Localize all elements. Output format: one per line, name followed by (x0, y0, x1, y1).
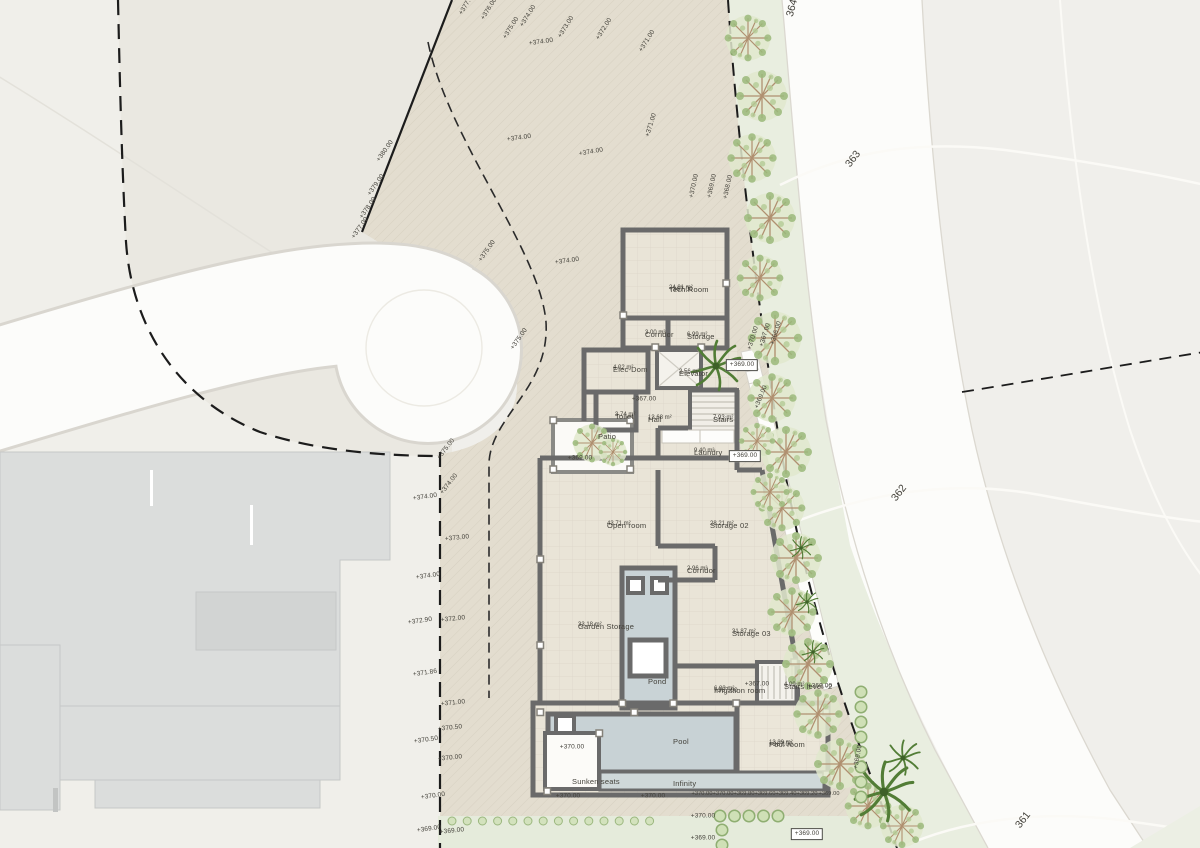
elevation-label: +370.00 (688, 173, 700, 198)
contour-label: 363 (843, 148, 863, 169)
elevation-label: +375.00 (502, 16, 521, 40)
elevation-label: +379.00 (366, 173, 386, 197)
elevation-label: +374.00 (412, 492, 437, 502)
elevation-label: +369.00 (753, 384, 769, 409)
elevation-label: +374.00 (554, 256, 579, 266)
elevation-label: +371.00 (638, 29, 657, 53)
elevation-label: +373.00 (557, 15, 576, 39)
elevation-label: +369.00 (440, 826, 465, 836)
elevation-label: +369.00 (726, 359, 758, 371)
elevation-label: +371.00 (441, 698, 466, 708)
elevation-label: +370.00 (712, 791, 733, 797)
elevation-label: +369.40 (775, 791, 796, 797)
elevation-label: +374.00 (578, 146, 603, 157)
elevation-label: +377.00 (350, 216, 370, 240)
elevation-label: +372.90 (407, 616, 432, 626)
elevation-label: +370.00 (420, 791, 445, 801)
elevation-label: +374.00 (439, 472, 460, 496)
elevation-label: +369.60 (754, 791, 775, 797)
annotation-layer: Tech.Room24.81 m²+367.00Corridor3.00 m²S… (0, 0, 1200, 848)
elevation-label: +370.00 (746, 325, 760, 350)
elevation-label: +370.00 (438, 753, 463, 763)
elevation-label: +369.00 (808, 683, 832, 690)
elevation-label: +367.00 (632, 396, 656, 403)
elevation-label: +371.00 (644, 112, 658, 137)
elevation-label: +367.00 (745, 681, 769, 688)
elevation-label: +374.00 (528, 37, 553, 47)
elevation-label: +369.00 (416, 824, 441, 834)
elevation-label: +375.00 (509, 327, 529, 351)
contour-label: 362 (889, 482, 909, 503)
elevation-label: +369.00 (818, 791, 839, 797)
elevation-label: +370.00 (691, 791, 712, 797)
elevation-label: +369.00 (706, 173, 718, 198)
elevation-label: +370.00 (556, 793, 580, 800)
elevation-label: +369.00 (791, 828, 823, 840)
elevation-label: +376.00 (480, 0, 499, 21)
elevation-label: +372.00 (441, 614, 466, 624)
site-plan-canvas: Tech.Room24.81 m²+367.00Corridor3.00 m²S… (0, 0, 1200, 848)
elevation-label: +374.00 (506, 133, 531, 143)
elevation-label: +372.00 (595, 17, 614, 41)
elevation-label: +371.86 (412, 668, 437, 678)
elevation-label: +378.00 (358, 196, 378, 220)
elevation-label: +370.50 (413, 735, 438, 745)
elevation-label: +370.00 (691, 813, 715, 820)
elevation-label: +369.00 (691, 835, 715, 842)
contour-label: 361 (1013, 809, 1033, 830)
elevation-label: +369.00 (729, 450, 761, 462)
elevation-label: +373.00 (445, 533, 470, 543)
elevation-label: +374.00 (415, 571, 440, 581)
elevation-label: +375.00 (477, 239, 497, 263)
elevation-label: +370.00 (560, 744, 584, 751)
elevation-label: +377.00 (458, 0, 477, 16)
elevation-label: +370.00 (641, 793, 665, 800)
elevation-label: +375.00 (436, 437, 457, 461)
elevation-label: +369.80 (733, 791, 754, 797)
elevation-label: +369.00 (568, 455, 592, 462)
elevation-label: +369.20 (796, 791, 817, 797)
elevation-label: +369.00 (852, 744, 863, 769)
elevation-label: +380.00 (375, 139, 395, 163)
elevation-label: +374.00 (519, 4, 538, 28)
elevation-label: +370.50 (438, 723, 463, 733)
elevation-label: +368.00 (722, 174, 734, 199)
contour-label: 364 (784, 0, 800, 18)
